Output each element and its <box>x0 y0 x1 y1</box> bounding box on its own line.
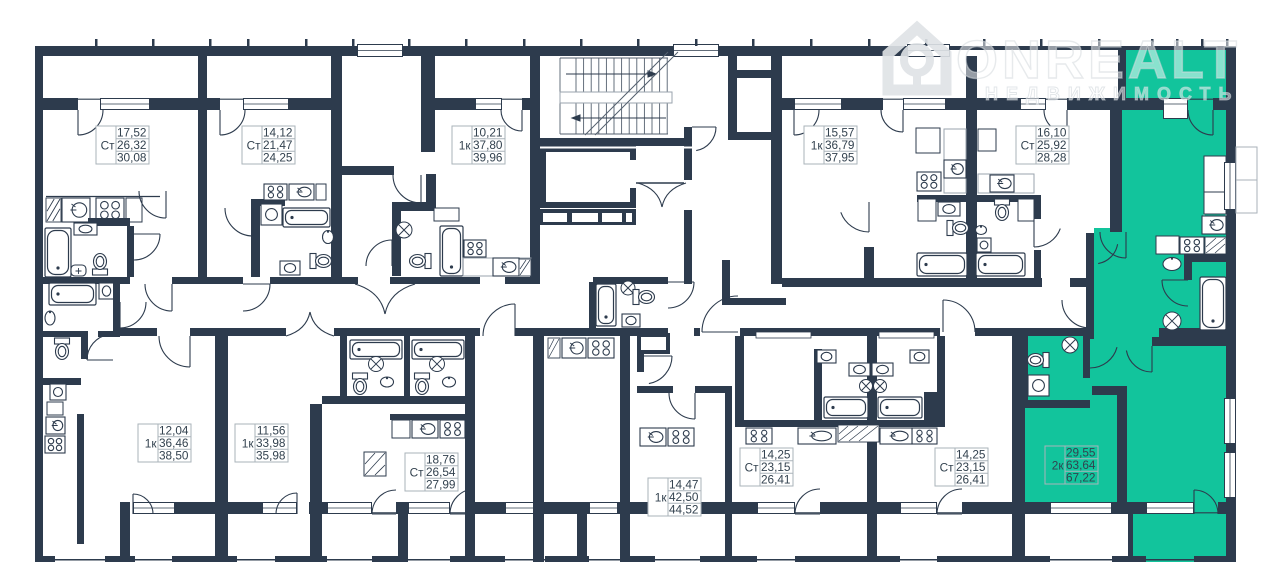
svg-text:26,41: 26,41 <box>956 473 986 487</box>
svg-text:1к: 1к <box>655 491 668 505</box>
svg-text:Ст: Ст <box>745 461 760 475</box>
svg-text:44,52: 44,52 <box>669 503 699 517</box>
svg-text:НЕДВИЖИМОСТЬ: НЕДВИЖИМОСТЬ <box>985 84 1239 104</box>
svg-text:67,22: 67,22 <box>1066 471 1096 485</box>
svg-text:30,08: 30,08 <box>117 151 147 165</box>
svg-text:Ст: Ст <box>940 461 955 475</box>
svg-text:1к: 1к <box>459 139 472 153</box>
svg-text:2к: 2к <box>1052 459 1065 473</box>
svg-text:38,50: 38,50 <box>159 449 189 463</box>
svg-text:37,95: 37,95 <box>825 151 855 165</box>
svg-text:1к: 1к <box>242 437 255 451</box>
svg-text:39,96: 39,96 <box>473 151 503 165</box>
svg-text:1к: 1к <box>811 139 824 153</box>
svg-text:35,98: 35,98 <box>256 449 286 463</box>
svg-text:Ст: Ст <box>1021 139 1036 153</box>
svg-text:Ст: Ст <box>247 139 262 153</box>
svg-text:28,28: 28,28 <box>1037 151 1067 165</box>
svg-text:27,99: 27,99 <box>426 478 456 492</box>
svg-text:1к: 1к <box>145 437 158 451</box>
svg-text:Ст: Ст <box>410 466 425 480</box>
svg-text:26,41: 26,41 <box>761 473 791 487</box>
svg-text:ONREALT: ONREALT <box>956 30 1241 90</box>
svg-text:Ст: Ст <box>101 139 116 153</box>
svg-text:24,25: 24,25 <box>263 151 293 165</box>
